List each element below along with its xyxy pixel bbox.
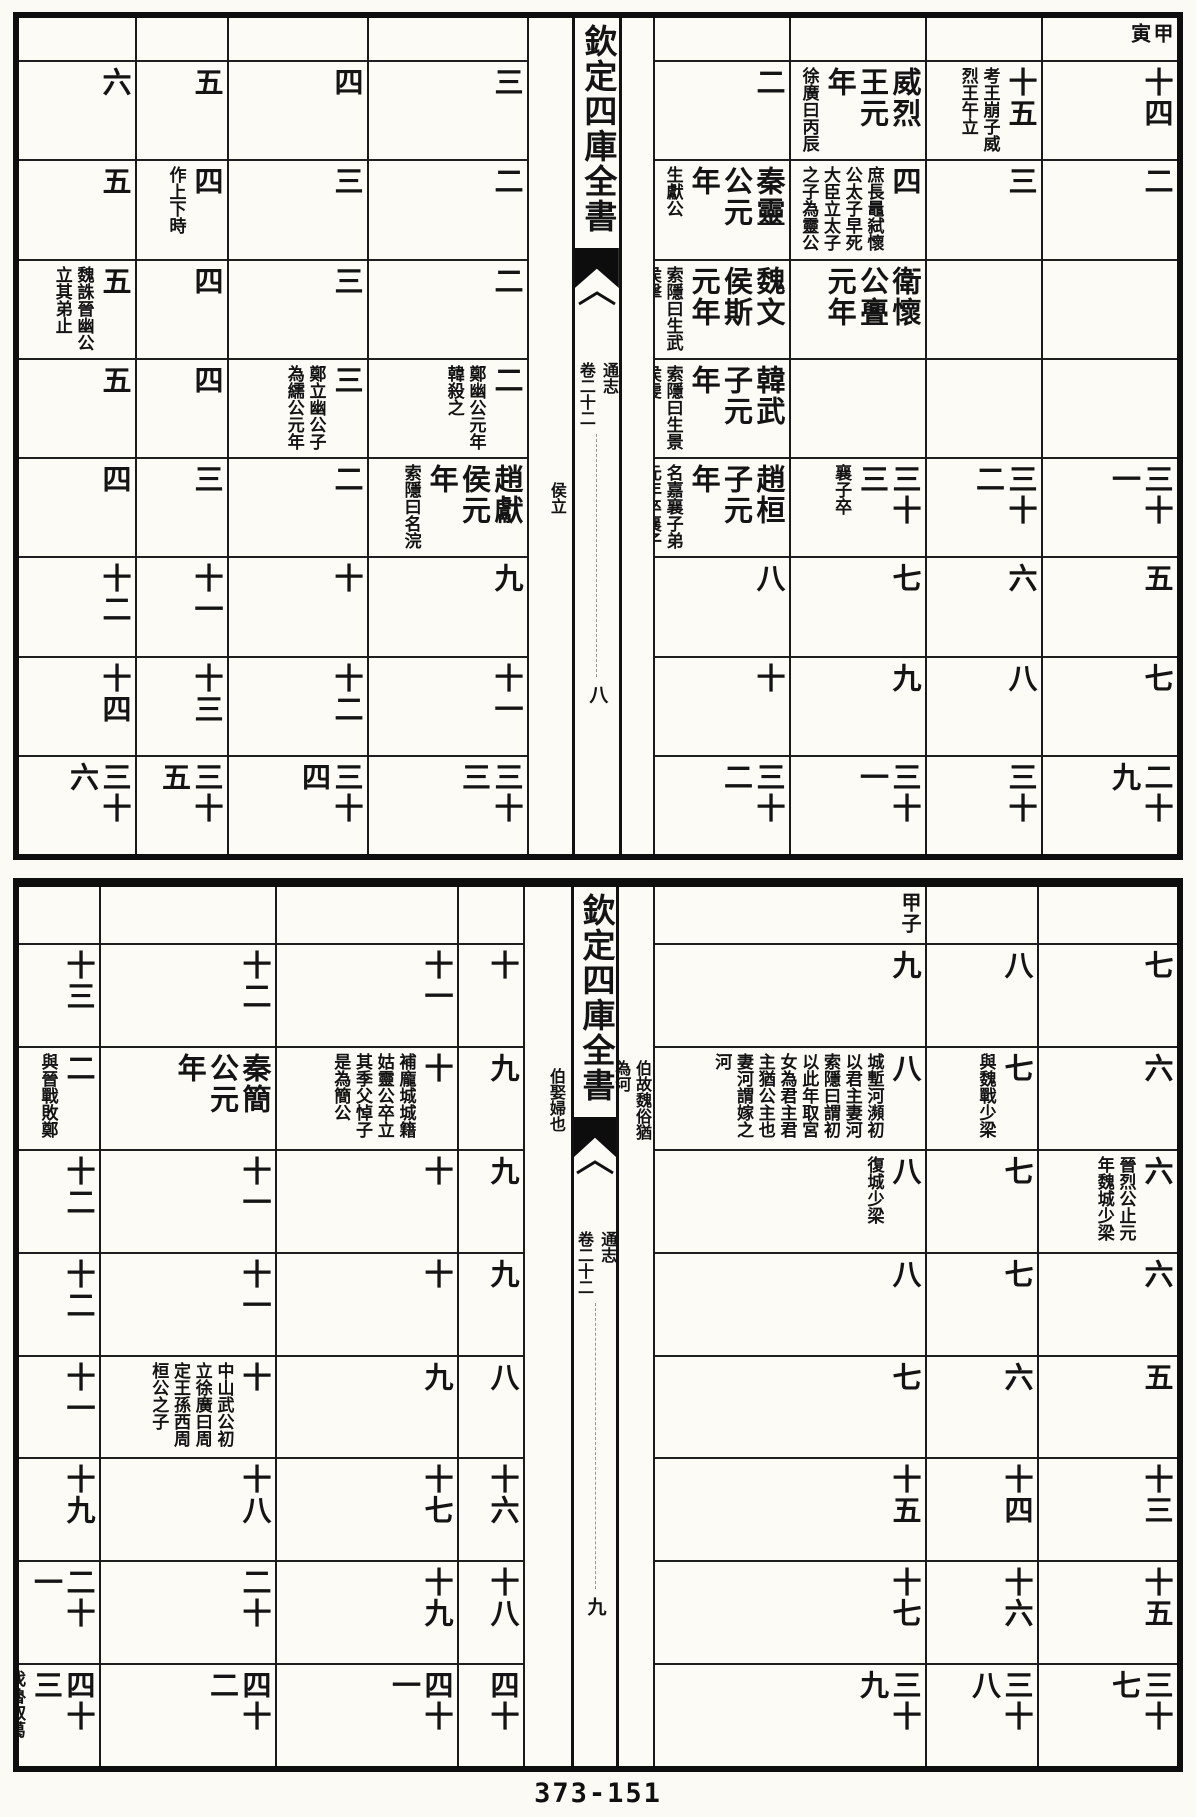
year-cell: 九 [459,1048,523,1151]
cell-text: 十 [232,563,362,652]
year-column: 甲寅十四二三十一五七二十九 [1041,18,1177,854]
year-column: 五四作上下時四四三十一十三三十五 [135,18,227,854]
cell-text [22,892,94,940]
year-column: 十九九九八十六十八四十 [457,887,523,1766]
cell-main-text: 九 [486,1053,518,1146]
cell-text: 二十九 [1046,762,1172,851]
cell-text: 三 [372,67,522,156]
cell-main-text: 五 [98,266,130,355]
lower-left-gutter: 伯娶婦也 [525,887,571,1766]
cell-note-text: 鄭幽公元年韓殺之 [443,365,487,454]
year-cell: 十一 [101,1151,275,1254]
year-cell: 十一 [137,558,227,657]
year-cell: 六晉烈公止元年魏城少梁 [1039,1151,1177,1254]
year-cell: 四 [137,261,227,360]
cell-text: 二十一 [22,1567,94,1660]
cell-text: 三鄭立幽公子為繻公元年 [232,365,362,454]
cell-main-text: 九 [490,563,522,652]
cell-text [1042,892,1172,940]
gutter-note: 伯故魏俗猶為河 [609,1060,651,1149]
ganzhi-cell [927,887,1037,945]
cell-note-text: 伐魯取葛 [19,1670,26,1763]
cell-main-text: 甲寅 [1127,23,1172,57]
year-cell: 十一 [19,1357,99,1460]
cell-text: 五 [22,365,130,454]
cell-text: 十三 [1042,1464,1172,1557]
cell-text [658,23,784,57]
spine-center-rule [596,434,597,677]
cell-main-text: 四十一 [387,1670,452,1763]
year-cell: 十二 [101,945,275,1048]
year-cell: 十四 [1043,62,1177,161]
cell-main-text: 十二 [330,663,362,752]
cell-text: 三十五 [140,762,222,851]
year-cell [791,360,925,459]
cell-text: 魏文侯斯元年索隱曰生武侯擊 [658,266,784,355]
cell-main-text: 六 [1000,1362,1032,1455]
cell-text [794,23,920,57]
cell-main-text: 九 [486,1259,518,1352]
cell-main-text: 七 [1140,663,1172,752]
cell-text [372,23,522,57]
year-cell: 八復城少梁 [655,1151,925,1254]
cell-main-text: 三 [330,166,362,255]
chevron-icon [575,1159,615,1175]
cell-main-text: 十八 [486,1567,518,1660]
cell-note-text: 補龐城城籍姑靈公卒立其季父悼子是為簡公 [330,1053,417,1146]
cell-text: 十一 [372,663,522,752]
cell-text: 三十九 [658,1670,920,1763]
cell-main-text: 六 [1004,563,1036,652]
cell-main-text: 十二 [238,950,270,1043]
year-cell: 九 [791,658,925,757]
year-cell: 三十四 [229,757,367,854]
cell-main-text: 三十八 [967,1670,1032,1763]
cell-text: 二與晉戰敗鄭 [22,1053,94,1146]
year-cell: 十二 [229,658,367,757]
year-cell: 十五 [655,1459,925,1562]
cell-text: 十一 [280,950,452,1043]
year-cell: 十一 [369,658,527,757]
cell-text: 四十二 [104,1670,270,1763]
cell-text: 十二 [22,1259,94,1352]
year-cell: 五 [137,62,227,161]
year-cell: 八 [927,945,1037,1048]
cell-main-text: 三十五 [157,762,222,851]
year-cell: 五 [1039,1357,1177,1460]
spine-juan-label: 卷二十二 [574,362,597,426]
cell-text [930,892,1032,940]
cell-main-text: 四 [190,166,222,255]
cell-main-text: 十四 [1000,1464,1032,1557]
year-cell: 四庶長鼂弑懷公太子早死大臣立太子之子為靈公 [791,161,925,260]
year-cell: 三十九 [655,1665,925,1766]
year-cell: 十三 [1039,1459,1177,1562]
cell-main-text: 九 [888,663,920,752]
cell-main-text: 三十三 [855,464,920,553]
cell-text: 秦靈公元年生獻公 [658,166,784,255]
cell-text: 十一 [104,1156,270,1249]
cell-text: 十補龐城城籍姑靈公卒立其季父悼子是為簡公 [280,1053,452,1146]
year-cell: 九 [459,1151,523,1254]
year-cell: 七 [1043,658,1177,757]
year-cell: 十六 [459,1459,523,1562]
cell-text: 十一 [140,563,222,652]
cell-text: 二 [232,464,362,553]
cell-main-text: 十二 [62,1156,94,1249]
cell-main-text: 三十一 [855,762,920,851]
spine-title: 欽定四庫全書 [573,24,621,234]
year-cell: 五 [1043,558,1177,657]
cell-text: 五魏誅晉幽公立其弟止 [22,266,130,355]
cell-text: 七 [794,563,920,652]
year-cell: 三十八 [927,1665,1037,1766]
cell-note-text: 作上下時 [165,166,187,255]
cell-text: 三十 [930,762,1036,851]
cell-main-text: 四 [190,266,222,355]
year-cell: 四十三伐魯取葛 [19,1665,99,1766]
cell-text: 三十一 [1046,464,1172,553]
year-cell: 九 [369,558,527,657]
cell-note-text: 索隱曰生武侯擊 [655,266,684,355]
cell-text: 六 [930,1362,1032,1455]
lower-left-page: 十三二與晉戰敗鄭十二十二十一十九二十一四十三伐魯取葛十二秦簡公元年十一十一十中山… [19,887,525,1766]
cell-note-text: 與魏戰少梁 [975,1053,997,1146]
year-cell: 四十二 [101,1665,275,1766]
cell-note-text: 襄子卒 [830,464,852,553]
cell-note-text: 索隱曰名浣 [400,464,422,553]
cell-text: 十二 [104,950,270,1043]
year-column: 八七與魏戰少梁七七六十四十六三十八 [925,887,1037,1766]
cell-main-text: 二 [62,1053,94,1146]
year-cell: 十四 [19,658,135,757]
year-cell [1043,261,1177,360]
cell-text: 威烈王元年徐廣曰丙辰 [794,67,920,156]
year-cell [1043,360,1177,459]
cell-text: 十 [280,1156,452,1249]
gutter-note: 侯立 [545,482,566,514]
year-column: 四三三三鄭立幽公子為繻公元年二十十二三十四 [227,18,367,854]
cell-text [930,365,1036,454]
year-cell: 十補龐城城籍姑靈公卒立其季父悼子是為簡公 [277,1048,457,1151]
cell-main-text: 四十二 [205,1670,270,1763]
ganzhi-cell [19,18,135,62]
cell-text: 九 [658,950,920,1043]
cell-text: 三十二 [658,762,784,851]
cell-main-text: 十五 [1004,67,1036,156]
cell-text: 八 [930,950,1032,1043]
cell-main-text: 六 [1140,1259,1172,1352]
year-cell: 十七 [655,1562,925,1665]
cell-main-text: 三十二 [719,762,784,851]
cell-text: 十八 [104,1464,270,1557]
cell-text: 八 [658,563,784,652]
cell-text: 四十 [462,1670,518,1763]
cell-main-text: 八 [1000,950,1032,1043]
year-cell: 八 [459,1357,523,1460]
cell-main-text: 八 [888,1053,920,1146]
cell-main-text: 十九 [420,1567,452,1660]
ganzhi-cell: 甲子 [655,887,925,945]
year-cell: 七 [1039,945,1177,1048]
spine-center-rule [595,1303,596,1589]
cell-main-text: 秦簡公元年 [173,1053,270,1146]
cell-note-text: 中山武公初立徐廣曰周定王孫西周桓公之子 [148,1362,235,1455]
cell-main-text: 十三 [190,663,222,752]
upper-table-block: 六五五魏誅晉幽公立其弟止五四十二十四三十六五四作上下時四四三十一十三三十五四三三… [13,12,1183,860]
cell-main-text: 十三 [1140,1464,1172,1557]
lower-right-page: 甲子九八城塹河瀕初以君主妻河索隱曰謂初以此年取宮女為君主君主猶公主也妻河謂嫁之河… [653,887,1177,1766]
spine-folio-number: 八 [583,685,610,704]
cell-text: 九 [462,1156,518,1249]
cell-main-text: 六 [1140,1053,1172,1146]
cell-text: 十 [462,950,518,1043]
cell-text: 二 [372,266,522,355]
cell-main-text: 三 [490,67,522,156]
cell-text: 七 [1046,663,1172,752]
cell-text [794,365,920,454]
cell-main-text: 五 [98,365,130,454]
cell-text: 七與魏戰少梁 [930,1053,1032,1146]
cell-main-text: 七 [1000,1053,1032,1146]
cell-main-text: 十 [420,1053,452,1146]
cell-main-text: 十六 [486,1464,518,1557]
year-column: 七六六晉烈公止元年魏城少梁六五十三十五三十七 [1037,887,1177,1766]
year-cell: 趙桓子元年名嘉襄子弟元年卒襄子子獻 [655,459,789,558]
cell-main-text: 七 [1000,1156,1032,1249]
cell-text: 十一 [104,1259,270,1352]
year-cell: 十二 [19,1254,99,1357]
year-cell: 十三 [137,658,227,757]
cell-text: 十五 [1042,1567,1172,1660]
cell-text: 四十三伐魯取葛 [22,1670,94,1763]
cell-note-text: 生獻公 [662,166,684,255]
cell-text: 二 [658,67,784,156]
cell-text: 四 [140,266,222,355]
year-cell [927,360,1041,459]
year-cell: 十八 [101,1459,275,1562]
cell-main-text: 三十一 [1107,464,1172,553]
year-cell: 二 [369,261,527,360]
cell-note-text: 庶長鼂弑懷公太子早死大臣立太子之子為靈公 [798,166,885,255]
cell-main-text: 十一 [238,1259,270,1352]
upper-left-gutter: 侯立 [529,18,572,854]
cell-text: 六 [22,67,130,156]
year-cell: 十 [229,558,367,657]
cell-text: 十一 [22,1362,94,1455]
cell-main-text: 十 [752,663,784,752]
year-cell: 二 [655,62,789,161]
cell-text: 九 [462,1053,518,1146]
cell-text [22,23,130,57]
year-column: 十五考王崩子威烈王午立三三十二六八三十 [925,18,1041,854]
year-cell: 三 [229,261,367,360]
year-cell: 十 [459,945,523,1048]
cell-text: 四 [22,464,130,553]
cell-text: 六晉烈公止元年魏城少梁 [1042,1156,1172,1249]
cell-text: 十八 [462,1567,518,1660]
year-cell: 二十一 [19,1562,99,1665]
spine-volume-label: 通志 卷二十二 [572,1231,618,1295]
cell-main-text: 十八 [238,1464,270,1557]
cell-text: 三 [140,464,222,553]
upper-left-page: 六五五魏誅晉幽公立其弟止五四十二十四三十六五四作上下時四四三十一十三三十五四三三… [19,18,529,854]
cell-note-text: 復城少梁 [863,1156,885,1249]
cell-main-text: 三十 [1004,762,1036,851]
year-cell: 韓武子元年索隱曰生景侯虔 [655,360,789,459]
spine-work-name: 通志 [595,1231,618,1295]
cell-main-text: 八 [888,1259,920,1352]
cell-main-text: 八 [752,563,784,652]
year-column: 三二二二鄭幽公元年韓殺之趙獻侯元年索隱曰名浣九十一三十三 [367,18,527,854]
cell-note-text: 晉烈公止元年魏城少梁 [1093,1156,1137,1249]
cell-main-text: 六 [1140,1156,1172,1249]
cell-main-text: 十七 [420,1464,452,1557]
cell-note-text: 名嘉襄子弟元年卒襄子子獻 [655,464,684,553]
year-cell: 趙獻侯元年索隱曰名浣 [369,459,527,558]
cell-main-text: 十六 [1000,1567,1032,1660]
cell-text: 七 [658,1362,920,1455]
year-cell: 三十三襄子卒 [791,459,925,558]
cell-main-text: 十四 [1140,67,1172,156]
cell-main-text: 七 [1140,950,1172,1043]
cell-text: 四庶長鼂弑懷公太子早死大臣立太子之子為靈公 [794,166,920,255]
cell-text: 八城塹河瀕初以君主妻河索隱曰謂初以此年取宮女為君主君主猶公主也妻河謂嫁之河 [658,1053,920,1146]
spine-work-name: 通志 [597,362,620,426]
cell-text: 十五考王崩子威烈王午立 [930,67,1036,156]
cell-text: 九 [280,1362,452,1455]
year-cell: 八城塹河瀕初以君主妻河索隱曰謂初以此年取宮女為君主君主猶公主也妻河謂嫁之河 [655,1048,925,1151]
year-cell: 九 [459,1254,523,1357]
cell-main-text: 四十三 [29,1670,94,1763]
cell-note-text: 城塹河瀕初以君主妻河索隱曰謂初以此年取宮女為君主君主猶公主也妻河謂嫁之河 [711,1053,885,1146]
cell-text: 八 [930,663,1036,752]
year-cell: 三十一 [1043,459,1177,558]
cell-main-text: 七 [888,563,920,652]
cell-main-text: 二 [330,464,362,553]
cell-main-text: 四 [190,365,222,454]
year-cell: 三十二 [927,459,1041,558]
cell-main-text: 十五 [1140,1567,1172,1660]
year-cell: 十中山武公初立徐廣曰周定王孫西周桓公之子 [101,1357,275,1460]
cell-text: 十九 [22,1464,94,1557]
cell-main-text: 十五 [888,1464,920,1557]
cell-text: 十 [280,1259,452,1352]
ganzhi-cell [19,887,99,945]
year-cell: 六 [927,1357,1037,1460]
cell-text: 五 [1046,563,1172,652]
cell-main-text: 二十 [238,1567,270,1660]
year-cell: 三十七 [1039,1665,1177,1766]
year-cell: 七 [791,558,925,657]
cell-text: 三十三 [372,762,522,851]
year-cell: 七與魏戰少梁 [927,1048,1037,1151]
ganzhi-cell [655,18,789,62]
cell-text: 三十六 [22,762,130,851]
year-cell: 二鄭幽公元年韓殺之 [369,360,527,459]
cell-main-text: 甲子 [898,892,920,940]
year-cell: 二與晉戰敗鄭 [19,1048,99,1151]
cell-main-text: 六 [98,67,130,156]
ganzhi-cell [369,18,527,62]
year-cell: 六 [1039,1254,1177,1357]
chevron-icon [577,290,617,306]
cell-text: 三 [232,166,362,255]
cell-main-text: 八 [888,1156,920,1249]
lower-spine: 欽定四庫全書 通志 卷二十二 九 [571,887,619,1766]
cell-text: 十中山武公初立徐廣曰周定王孫西周桓公之子 [104,1362,270,1455]
cell-main-text: 七 [1000,1259,1032,1352]
cell-text: 七 [930,1156,1032,1249]
cell-note-text: 魏誅晉幽公立其弟止 [51,266,95,355]
year-cell: 十一 [101,1254,275,1357]
year-cell: 七 [927,1254,1037,1357]
year-cell: 秦靈公元年生獻公 [655,161,789,260]
year-cell: 三十 [927,757,1041,854]
year-cell: 秦簡公元年 [101,1048,275,1151]
year-cell: 十 [277,1151,457,1254]
cell-text: 四作上下時 [140,166,222,255]
cell-text: 十二 [232,663,362,752]
cell-text: 趙桓子元年名嘉襄子弟元年卒襄子子獻 [658,464,784,553]
year-cell: 十八 [459,1562,523,1665]
cell-text: 十六 [930,1567,1032,1660]
year-cell: 十 [277,1254,457,1357]
fishtail-icon [575,248,619,288]
cell-main-text: 十 [486,950,518,1043]
year-cell: 二 [1043,161,1177,260]
cell-text: 十二 [22,563,130,652]
cell-text [462,892,518,940]
ganzhi-cell [277,887,457,945]
cell-main-text: 十一 [490,663,522,752]
year-column: 十二秦簡公元年十一十一十中山武公初立徐廣曰周定王孫西周桓公之子十八二十四十二 [99,887,275,1766]
year-cell: 五 [19,360,135,459]
year-cell: 十 [655,658,789,757]
cell-main-text: 五 [1140,563,1172,652]
year-cell: 六 [19,62,135,161]
year-cell: 五 [19,161,135,260]
cell-text [1046,266,1172,355]
year-cell: 二十 [101,1562,275,1665]
cell-main-text: 三 [330,266,362,355]
year-cell: 六 [927,558,1041,657]
cell-text: 秦簡公元年 [104,1053,270,1146]
cell-note-text: 與晉戰敗鄭 [37,1053,59,1146]
cell-text [232,23,362,57]
lower-right-gutter: 伯故魏俗猶為河 [619,887,653,1766]
cell-main-text: 十 [238,1362,270,1455]
cell-main-text: 三 [190,464,222,553]
year-cell: 十四 [927,1459,1037,1562]
cell-text: 七 [930,1259,1032,1352]
cell-text: 九 [372,563,522,652]
cell-main-text: 四十 [486,1670,518,1763]
year-column: 十三二與晉戰敗鄭十二十二十一十九二十一四十三伐魯取葛 [19,887,99,1766]
year-cell: 十三 [19,945,99,1048]
cell-text: 三 [930,166,1036,255]
cell-text: 五 [1042,1362,1172,1455]
year-cell: 十五 [1039,1562,1177,1665]
cell-text: 三十四 [232,762,362,851]
cell-text: 趙獻侯元年索隱曰名浣 [372,464,522,553]
cell-main-text: 二 [1140,166,1172,255]
year-column: 十一十補龐城城籍姑靈公卒立其季父悼子是為簡公十十九十七十九四十一 [275,887,457,1766]
year-column: 甲子九八城塹河瀕初以君主妻河索隱曰謂初以此年取宮女為君主君主猶公主也妻河謂嫁之河… [655,887,925,1766]
cell-main-text: 十 [420,1156,452,1249]
cell-main-text: 十三 [62,950,94,1043]
cell-main-text: 韓武子元年 [687,365,784,454]
